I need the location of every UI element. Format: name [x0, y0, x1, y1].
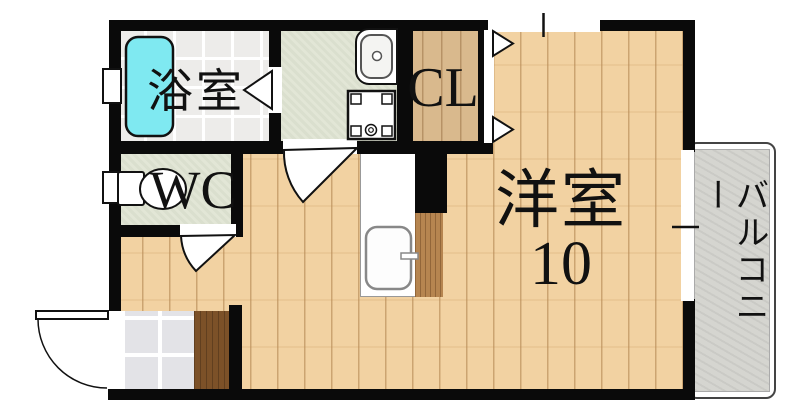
- washing-machine-pan: [348, 91, 395, 139]
- bathroom-folding-door: [244, 71, 272, 109]
- kitchen-sink: [366, 227, 418, 289]
- fixtures-layer: [0, 0, 806, 413]
- washroom-door: [284, 148, 357, 202]
- wc-label: WC: [150, 163, 237, 217]
- floor-plan: 浴室 WC CL 洋室 10 バルコニー: [0, 0, 806, 413]
- entrance-door: [36, 311, 108, 388]
- closet-bifold-door: [493, 31, 513, 142]
- main-room-size: 10: [530, 233, 592, 295]
- closet-label: CL: [407, 60, 479, 116]
- wc-door: [181, 235, 235, 271]
- vanity-sink: [356, 29, 397, 84]
- main-room-label: 洋室: [495, 169, 627, 233]
- balcony-label: バルコニー: [697, 178, 765, 335]
- bathroom-label: 浴室: [147, 69, 245, 115]
